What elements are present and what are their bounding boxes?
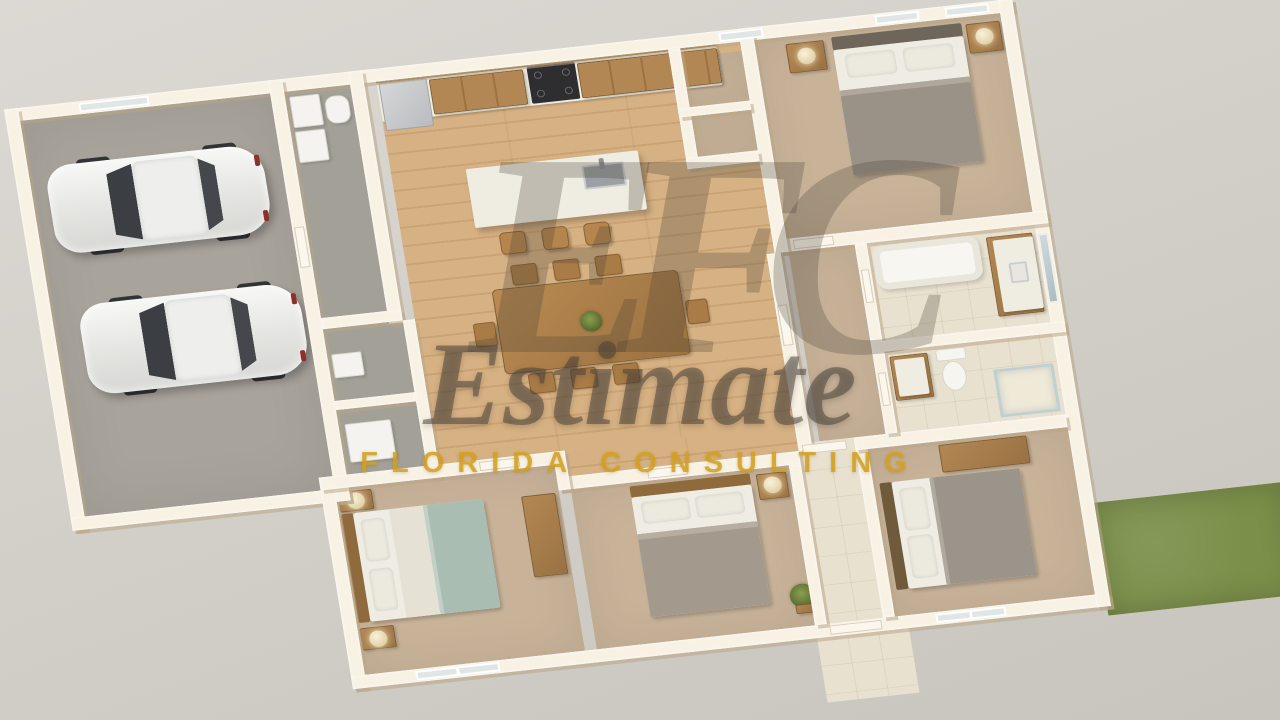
bedroom3-bed — [629, 473, 770, 617]
dining-chair — [473, 322, 499, 348]
bar-stool — [499, 230, 529, 255]
car-2 — [77, 282, 312, 396]
car-1 — [44, 143, 274, 255]
car-roof — [163, 294, 242, 382]
dining-chair — [612, 362, 641, 385]
car-roof — [131, 155, 210, 241]
car-taillight — [254, 155, 261, 167]
bedroom4-bed — [879, 468, 1036, 590]
vanity-sink — [1008, 261, 1029, 283]
blanket — [637, 521, 771, 617]
blanket — [929, 468, 1036, 585]
bar-stool — [541, 226, 571, 251]
house-plan — [18, 0, 1280, 720]
range-cooktop — [526, 62, 580, 104]
dryer — [295, 129, 330, 164]
bath2-counter — [894, 357, 930, 397]
blanket — [840, 76, 984, 175]
car-taillight — [291, 293, 298, 305]
glass-shower — [993, 363, 1061, 417]
master-bed — [831, 23, 984, 175]
bar-stool — [583, 221, 613, 246]
dining-chair — [594, 253, 623, 276]
yard-grass — [1090, 482, 1280, 615]
dining-chair — [685, 298, 711, 324]
storage-box — [344, 419, 396, 463]
porch-tile — [817, 628, 920, 703]
dining-chair — [570, 367, 599, 390]
refrigerator — [378, 78, 434, 131]
storage-box-small — [331, 351, 365, 378]
dining-chair — [510, 263, 539, 286]
dining-chair — [528, 371, 557, 394]
floor-plan-render: EFC Estimate FLORIDA CONSULTING — [0, 0, 1280, 720]
washer — [289, 94, 324, 129]
dining-chair — [552, 258, 581, 281]
bedroom2-bed — [341, 499, 501, 623]
entry-closet-floor-2 — [691, 110, 758, 157]
